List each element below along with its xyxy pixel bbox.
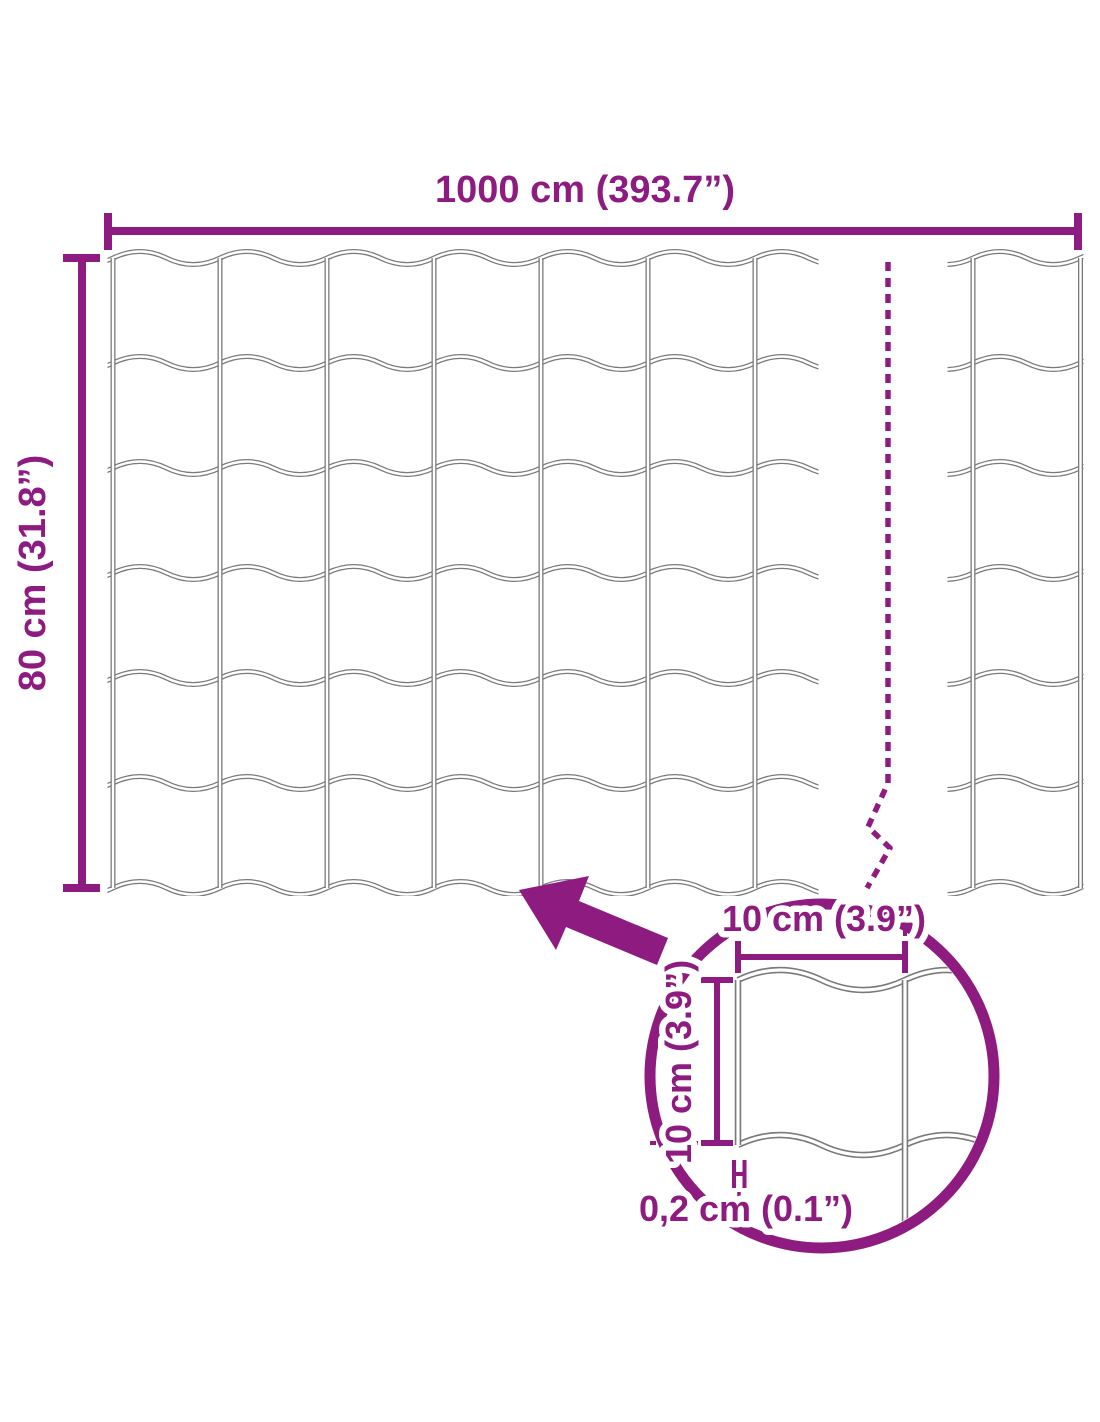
total-height-label: 80 cm (31.8”) <box>12 455 54 692</box>
cell-width-label: 10 cm (3.9”) <box>722 898 926 939</box>
total-width-label: 1000 cm (393.7”) <box>435 169 735 211</box>
product-dimension-diagram: 1000 cm (393.7”) 80 cm (31.8”) 10 cm (3.… <box>0 0 1100 1422</box>
height-dimension <box>63 258 100 888</box>
fence-mesh-main <box>6 252 969 895</box>
cell-height-label: 10 cm (3.9”) <box>658 960 699 1164</box>
fence-dimension-diagram: 1000 cm (393.7”) 80 cm (31.8”) 10 cm (3.… <box>0 0 1100 1422</box>
wire-thickness-label: 0,2 cm (0.1”) <box>639 1188 853 1229</box>
mesh-break-line <box>867 262 890 888</box>
width-dimension <box>108 213 1078 250</box>
fence-mesh-right <box>866 252 1100 895</box>
